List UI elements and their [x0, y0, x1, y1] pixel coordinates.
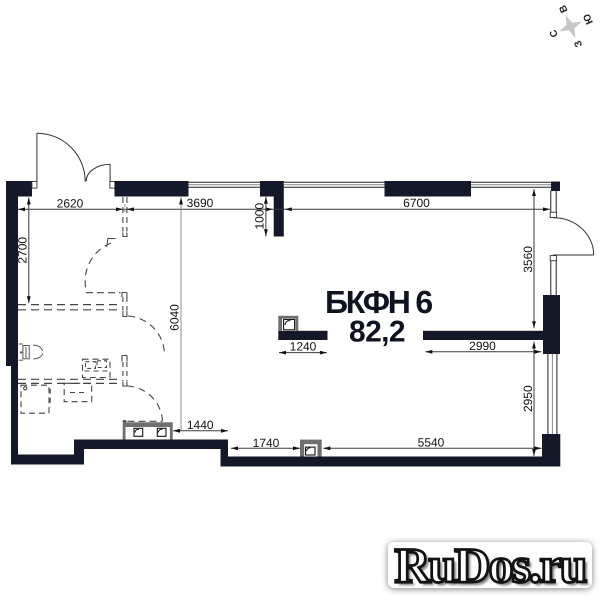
svg-text:82,2: 82,2 — [349, 315, 405, 348]
svg-text:1240: 1240 — [290, 340, 317, 354]
svg-text:6700: 6700 — [403, 196, 430, 210]
svg-text:2990: 2990 — [469, 339, 496, 353]
svg-text:2700: 2700 — [16, 237, 30, 264]
svg-text:1440: 1440 — [187, 418, 214, 432]
svg-text:С: С — [548, 28, 561, 39]
svg-text:3560: 3560 — [521, 246, 535, 273]
svg-text:Ю: Ю — [582, 12, 596, 26]
svg-text:1000: 1000 — [253, 203, 267, 230]
svg-text:2620: 2620 — [57, 196, 84, 210]
svg-text:6040: 6040 — [168, 304, 182, 331]
svg-text:З: З — [573, 39, 586, 49]
svg-text:5540: 5540 — [418, 436, 445, 450]
svg-text:1740: 1740 — [253, 436, 280, 450]
svg-text:2950: 2950 — [521, 385, 535, 412]
svg-text:3690: 3690 — [187, 196, 214, 210]
svg-text:В: В — [558, 3, 571, 14]
